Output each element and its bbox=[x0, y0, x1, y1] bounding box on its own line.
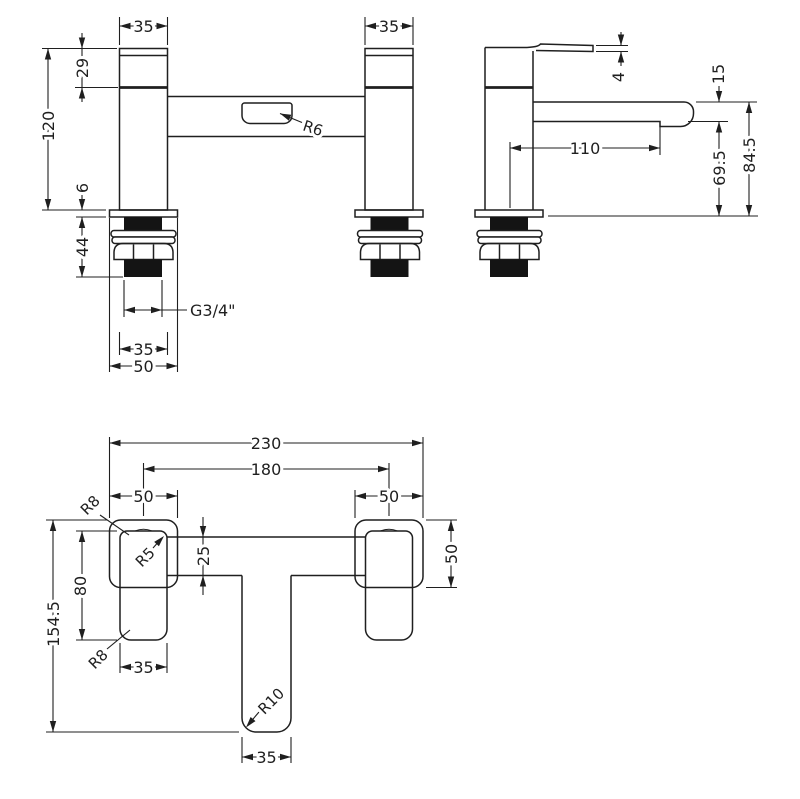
dim-side-spout-thickness: 15 bbox=[688, 64, 757, 133]
dim-front-width-top-left: 35 bbox=[120, 17, 168, 45]
dim-label: 35 bbox=[379, 17, 399, 36]
dim-front-thread-spec: G3/4" bbox=[124, 280, 236, 320]
side-body bbox=[485, 44, 694, 210]
dim-front-thread-width: 35 bbox=[120, 332, 168, 359]
dim-label: R8 bbox=[85, 646, 112, 673]
dim-label: R8 bbox=[77, 492, 104, 519]
front-view: 35 35 29 120 bbox=[39, 17, 423, 376]
dim-label: 50 bbox=[442, 544, 461, 564]
dim-plan-spout-width: 35 bbox=[242, 737, 291, 767]
dim-label: 154.5 bbox=[44, 601, 63, 647]
front-left-pillar bbox=[120, 49, 168, 211]
dim-label: 80 bbox=[71, 576, 90, 596]
leader-plan-r10: R10 bbox=[246, 684, 288, 727]
front-slot bbox=[242, 103, 292, 124]
dim-label: 230 bbox=[251, 434, 282, 453]
dim-plan-bar-width: 25 bbox=[194, 517, 213, 595]
dim-front-deck-thickness: 6 bbox=[73, 183, 106, 228]
side-spout bbox=[533, 102, 694, 127]
dim-label: 35 bbox=[133, 658, 153, 677]
side-view: 4 15 69.5 84.5 110 bbox=[475, 32, 759, 277]
dim-label: 110 bbox=[570, 139, 601, 158]
dim-plan-base-depth: 50 bbox=[426, 520, 461, 588]
front-right-pillar bbox=[365, 49, 413, 211]
dim-label: 44 bbox=[73, 237, 92, 257]
dim-label: R5 bbox=[132, 544, 159, 571]
dim-plan-centres: 180 bbox=[144, 460, 390, 516]
dim-label: 25 bbox=[194, 546, 213, 566]
dim-label: 50 bbox=[133, 487, 153, 506]
plan-right-handle bbox=[366, 529, 413, 640]
dim-side-height-underside: 69.5 bbox=[710, 122, 729, 217]
dim-label: 4 bbox=[609, 72, 628, 82]
dim-label: 120 bbox=[39, 111, 58, 142]
dim-label: 35 bbox=[256, 748, 276, 767]
dim-label: 50 bbox=[379, 487, 399, 506]
dim-label: 69.5 bbox=[710, 150, 729, 186]
dim-label: G3/4" bbox=[190, 301, 236, 320]
dim-label: 29 bbox=[73, 58, 92, 78]
dim-label: 35 bbox=[133, 17, 153, 36]
front-left-tail bbox=[111, 217, 176, 277]
dim-side-lever-thickness: 4 bbox=[596, 32, 628, 82]
dim-label: 180 bbox=[251, 460, 282, 479]
front-left-flange bbox=[110, 210, 178, 217]
side-tail bbox=[477, 217, 542, 277]
front-spout-bar bbox=[168, 97, 366, 137]
front-right-flange bbox=[355, 210, 423, 217]
dim-front-head-height: 29 bbox=[42, 33, 118, 102]
leader-plan-r5: R5 bbox=[132, 536, 164, 571]
dim-label: 6 bbox=[73, 183, 92, 193]
dim-label: 50 bbox=[133, 357, 153, 376]
side-lever bbox=[527, 44, 593, 52]
technical-drawing-page: 35 35 29 120 bbox=[0, 0, 800, 799]
dim-label: 15 bbox=[709, 64, 728, 84]
dim-label: 84.5 bbox=[740, 137, 759, 173]
side-flange bbox=[475, 210, 543, 217]
dim-plan-handle-width: 35 bbox=[120, 643, 167, 677]
dim-front-width-top-right: 35 bbox=[365, 17, 413, 45]
technical-drawing: 35 35 29 120 bbox=[0, 0, 800, 799]
plan-view: 230 180 50 50 50 bbox=[44, 434, 461, 767]
leader-plan-r8-top: R8 bbox=[77, 492, 129, 535]
front-right-tail bbox=[358, 217, 423, 277]
dim-label: R10 bbox=[254, 684, 288, 718]
